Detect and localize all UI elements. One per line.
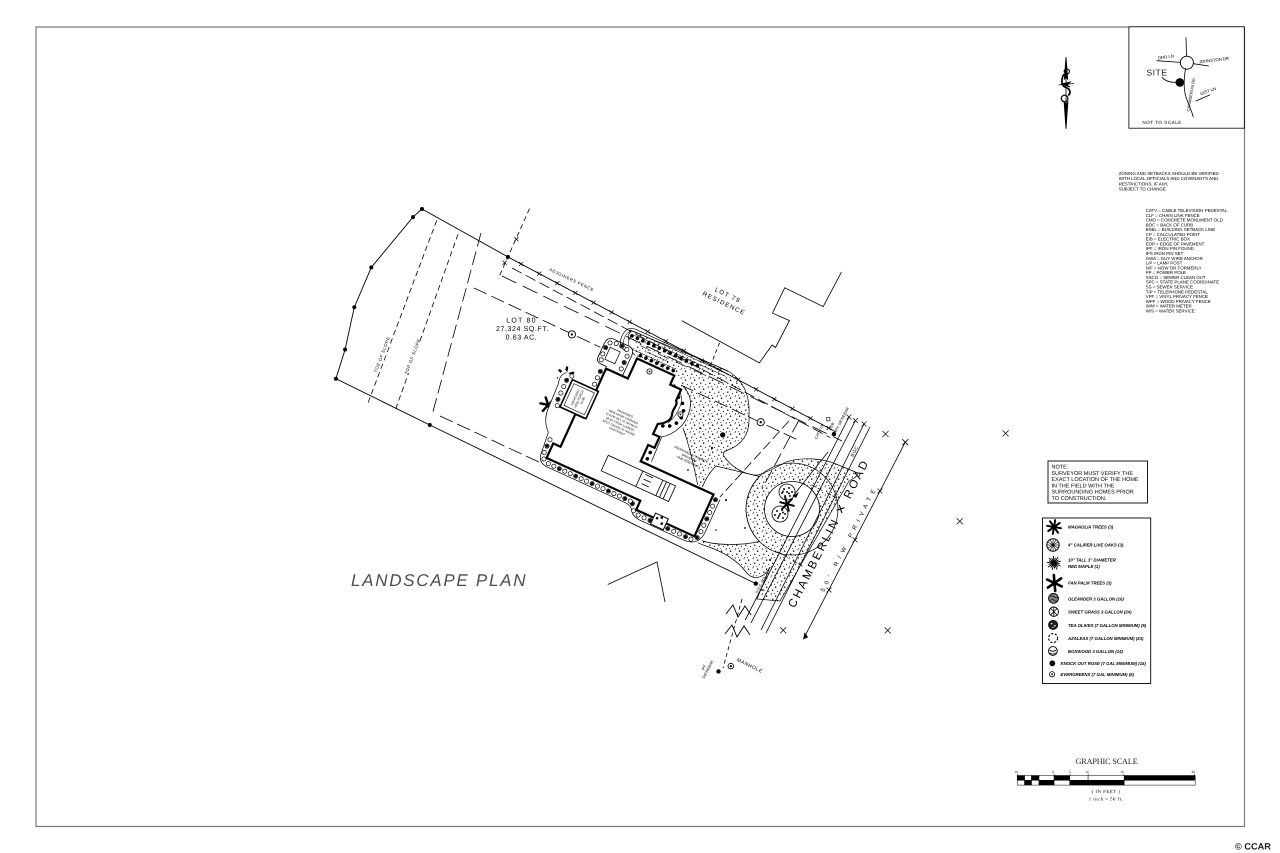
svg-text:40: 40 [1192, 770, 1196, 774]
svg-text:SWEET GRASS 3 GALLON (24): SWEET GRASS 3 GALLON (24) [1068, 610, 1132, 615]
svg-text:RED MAPLE (1): RED MAPLE (1) [1068, 564, 1100, 569]
svg-text:LANDSCAPE PLAN: LANDSCAPE PLAN [351, 571, 529, 590]
svg-text:SITE: SITE [1147, 68, 1168, 78]
svg-text:OLEANDER 3 GALLON (16): OLEANDER 3 GALLON (16) [1068, 596, 1124, 601]
svg-text:NOTE:: NOTE: [1052, 465, 1069, 471]
svg-text:LOT 80: LOT 80 [506, 318, 536, 325]
svg-text:EXACT LOCATION OF THE HOME: EXACT LOCATION OF THE HOME [1052, 477, 1139, 483]
svg-text:SURROUNDING HOMES PRIOR: SURROUNDING HOMES PRIOR [1052, 490, 1134, 496]
svg-text:KNOCK OUT ROSE (7 GAL MINIMUM): KNOCK OUT ROSE (7 GAL MINIMUM) (18) [1061, 661, 1147, 666]
svg-text:© CCAR: © CCAR [1235, 842, 1271, 852]
svg-text:IN THE FIELD WITH THE: IN THE FIELD WITH THE [1052, 483, 1115, 489]
svg-text:AZALEAS (7 GALLON MINIMUM) (23: AZALEAS (7 GALLON MINIMUM) (23) [1067, 636, 1144, 641]
svg-text:10" TALL 3" DIAMETER: 10" TALL 3" DIAMETER [1068, 558, 1117, 563]
svg-text:4" CALIPER LIVE OAKS (3): 4" CALIPER LIVE OAKS (3) [1067, 543, 1124, 548]
svg-text:0: 0 [1052, 770, 1054, 774]
svg-text:NOT TO SCALE: NOT TO SCALE [1142, 120, 1181, 125]
svg-text:FAN PALM TREES (3): FAN PALM TREES (3) [1068, 581, 1112, 586]
svg-text:TO CONSTRUCTION.: TO CONSTRUCTION. [1052, 496, 1107, 502]
svg-text:TEA OLIVES (7 GALLON MINIMUM): TEA OLIVES (7 GALLON MINIMUM) (5) [1068, 623, 1147, 628]
svg-text:20: 20 [1121, 770, 1125, 774]
svg-text:MAGNOLIA TREES (3): MAGNOLIA TREES (3) [1068, 525, 1114, 530]
svg-text:SUBJECT TO CHANGE.: SUBJECT TO CHANGE. [1119, 187, 1167, 192]
svg-text:27,324 SQ.FT.: 27,324 SQ.FT. [496, 326, 549, 333]
svg-text:10: 10 [1015, 770, 1019, 774]
svg-text:SURVEYOR MUST VERIFY THE: SURVEYOR MUST VERIFY THE [1052, 471, 1134, 477]
svg-text:( IN FEET ): ( IN FEET ) [1092, 789, 1121, 795]
svg-text:0.63 AC.: 0.63 AC. [506, 335, 538, 342]
svg-text:GRAPHIC SCALE: GRAPHIC SCALE [1076, 757, 1139, 766]
svg-text:EVERGREENS (7 GAL MINIMUM) (8): EVERGREENS (7 GAL MINIMUM) (8) [1061, 672, 1135, 677]
svg-text:BOXWOOD 3 GALLON (14): BOXWOOD 3 GALLON (14) [1068, 649, 1123, 654]
svg-text:W/S = WATER SERVICE: W/S = WATER SERVICE [1146, 308, 1195, 313]
svg-text:1 inch = 50 ft.: 1 inch = 50 ft. [1089, 797, 1124, 803]
svg-text:5: 5 [1069, 770, 1071, 774]
svg-text:10: 10 [1085, 770, 1089, 774]
